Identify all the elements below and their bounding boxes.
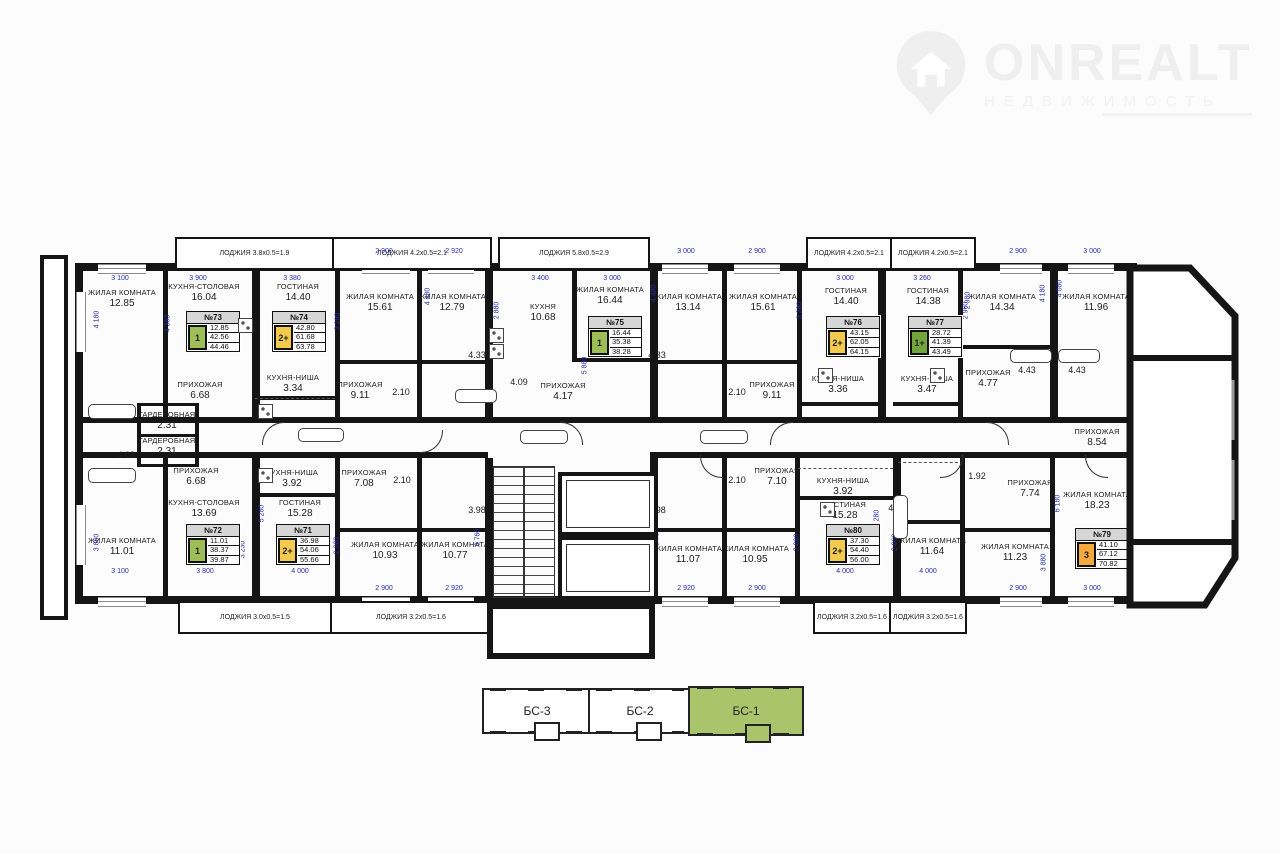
room-area: 4.33 [637,350,677,360]
door-arc [700,455,723,478]
dimension-label: 4 000 [278,568,322,575]
window-icon [1000,264,1042,274]
area-value: 55.66 [298,556,329,564]
dimension-label: 3 000 [664,248,708,255]
window-icon [98,264,146,274]
stove-icon [489,328,504,343]
stove-icon [258,468,273,483]
logo-brand-text: ONREALT [984,37,1252,89]
apartment-areas: 28.7241.3943.49 [930,329,961,356]
room-name: ЖИЛАЯ КОМНАТА [397,292,507,301]
kitchen-niche-boundary [898,462,958,463]
area-value: 63.78 [294,343,325,351]
section-notches [490,688,583,691]
section-block-БС-1[interactable]: БС-1 [688,686,804,736]
elevator-shaft-1 [558,472,658,536]
bathtub-icon [1010,349,1052,363]
loggia: ЛОДЖИЯ 5.8х0.5=2.9 [498,237,650,270]
room-area: 2.31 [112,420,222,431]
room-label: ЖИЛАЯ КОМНАТА11.23 [960,542,1070,563]
wall-segment [82,417,1130,423]
loggia-label: ЛОДЖИЯ 4.2х0.5=2.1 [898,250,968,257]
dimension-label: 2 920 [432,248,476,255]
room-name: ГАРДЕРОБНАЯ [112,436,222,445]
room-area: 4.77 [933,378,1043,389]
door-arc [770,422,793,445]
dimension-label: 3 000 [590,275,634,282]
loggia: ЛОДЖИЯ 3.2х0.5=1.6 [813,601,891,634]
room-name: ПРИХОЖАЯ [508,381,618,390]
apartment-areas: 12.8542.5644.46 [208,324,239,351]
area-value: 56.00 [848,556,879,564]
room-count-badge: 1+ [910,330,929,355]
door-arc [986,422,1009,445]
room-count-badge: 2+ [828,538,847,563]
area-value: 43.49 [930,348,961,356]
bathtub-icon [1058,349,1100,363]
room-area: 4.17 [508,391,618,402]
loggia: ЛОДЖИЯ 4.2х0.5=2.1 [890,237,976,270]
dimension-label: 2 920 [432,585,476,592]
room-area: 2.10 [381,387,421,397]
room-label: КУХНЯ-СТОЛОВАЯ13.69 [149,498,259,519]
room-area: 11.23 [960,552,1070,563]
room-count-badge: 2+ [274,325,293,350]
right-bay-outline [1125,260,1240,612]
apartment-info-box[interactable]: №762+43.1562.0564.15 [826,316,880,357]
door-arc [262,422,285,445]
wall-segment [137,403,199,406]
stove-icon [818,368,833,383]
dimension-label: 2 900 [362,248,406,255]
area-value: 39.87 [208,556,239,564]
dimension-label: 2 900 [735,248,779,255]
dimension-label: 2 880 [794,521,801,565]
room-name: ГОСТИНАЯ [243,282,353,291]
bathtub-icon [700,430,748,444]
dimension-label: 3 000 [1070,248,1114,255]
wall-segment [335,360,417,364]
stove-icon [258,404,273,419]
loggia-label: ЛОДЖИЯ 3.8х0.5=1.9 [220,250,290,257]
room-label: ПРИХОЖАЯ4.17 [508,381,618,402]
dimension-label: 3 000 [823,275,867,282]
room-area: 4.43 [1007,365,1047,375]
window-icon [662,264,708,274]
door-arc [560,422,583,445]
room-area: 6.68 [141,476,251,487]
loggia: ЛОДЖИЯ 3.8х0.5=1.9 [175,237,334,270]
window-icon [734,597,780,607]
dimension-label: 3 100 [98,568,142,575]
elevator-shaft-2 [558,536,658,600]
window-icon [1068,597,1114,607]
apartment-areas: 16.4435.3838.28 [610,329,641,356]
apartment-info-box[interactable]: №72111.0138.3739.87 [186,524,240,565]
wall-segment [485,458,493,596]
room-area: 4.68 [106,450,146,460]
apartment-info-box[interactable]: №75116.4435.3838.28 [588,316,642,357]
wall-segment [722,360,797,364]
dimension-label: 3 400 [518,275,562,282]
bathtub-icon [88,468,136,483]
room-name: КУХНЯ-СТОЛОВАЯ [149,498,259,507]
dimension-label: 3 280 [797,289,804,333]
section-notches [697,686,796,689]
section-entrance-tab [745,724,771,743]
dimension-label: 4 000 [906,568,950,575]
room-label: ЖИЛАЯ КОМНАТА11.01 [67,536,177,557]
logo-subtitle-text: НЕДВИЖИМОСТЬ [984,93,1252,110]
door-arc [420,430,443,453]
dimension-label: 2 880 [494,289,501,333]
dimension-label: 3 760 [475,516,482,560]
loggia-label: ЛОДЖИЯ 4.2х0.5=2.1 [814,250,884,257]
dimension-label: 2 880 [334,524,341,568]
area-value: 44.46 [208,343,239,351]
kitchen-niche-boundary [255,398,335,399]
dimension-label: 5 280 [259,492,266,536]
section-entrance-tab [636,722,662,741]
dimension-label: 4 180 [1040,272,1047,316]
loggia: ЛОДЖИЯ 4.2х0.5=2.1 [806,237,892,270]
stove-icon [820,502,835,517]
dimension-label: 2 900 [996,585,1040,592]
dimension-label: 2 900 [996,248,1040,255]
apartment-areas: 36.9854.0655.66 [298,537,329,564]
dimension-label: 3 900 [176,275,220,282]
wall-segment [960,528,1050,532]
dimension-label: 6 180 [1055,482,1062,526]
loggia-label: ЛОДЖИЯ 3.0х0.5=1.5 [220,614,290,621]
dimension-label: 3 860 [94,521,101,565]
room-area: 11.01 [67,546,177,557]
room-label: ПРИХОЖАЯ6.68 [141,466,251,487]
room-area: 13.69 [149,508,259,519]
section-block-БС-2[interactable]: БС-2 [588,688,692,734]
room-name: ЖИЛАЯ КОМНАТА [67,536,177,545]
window-icon [1068,264,1114,274]
section-block-БС-3[interactable]: БС-3 [482,688,592,734]
room-name: ПРИХОЖАЯ [141,466,251,475]
dimension-label: 3 100 [98,275,142,282]
room-area: 4.43 [1057,365,1097,375]
dimension-label: 3 280 [335,300,342,344]
room-count-badge: 1 [188,325,207,350]
bathtub-icon [455,389,497,403]
section-notches [596,688,684,691]
apartment-info-box[interactable]: №802+37.3054.4056.00 [826,524,880,565]
dimension-label: 4 000 [823,568,867,575]
dimension-label: 3 880 [1041,541,1048,585]
window-icon [734,264,780,274]
room-area: 2.10 [382,475,422,485]
wall-segment [417,360,485,364]
loggia: ЛОДЖИЯ 3.0х0.5=1.5 [178,601,332,634]
section-entrance-tab [534,722,560,741]
dimension-label: 4 380 [165,302,172,346]
window-icon [662,597,708,607]
room-count-badge: 1 [188,538,207,563]
door-arc [1085,455,1108,478]
section-label: БС-1 [732,704,759,718]
area-value: 38.28 [610,348,641,356]
room-area: 10.68 [488,312,598,323]
stairwell [493,466,555,598]
loggia-label: ЛОДЖИЯ 3.2х0.5=1.6 [817,614,887,621]
apartment-areas: 41.1067.1270.82 [1097,541,1128,568]
wall-segment [650,360,722,364]
apartment-areas: 43.1562.0564.15 [848,329,879,356]
room-name: ПРИХОЖАЯ [975,478,1085,487]
dimension-label: 2 900 [735,585,779,592]
window-icon [1000,597,1042,607]
onrealt-logo: ONREALT НЕДВИЖИМОСТЬ [892,28,1252,118]
dimension-label: 4 080 [1057,267,1064,311]
loggia: ЛОДЖИЯ 3.2х0.5=1.6 [330,601,492,634]
dimension-label: 2 900 [362,585,406,592]
adjacent-section-strip [40,255,68,620]
room-count-badge: 2+ [828,330,847,355]
apartment-areas: 42.8061.6863.78 [294,324,325,351]
bathtub-icon [298,428,344,442]
area-value: 70.82 [1097,560,1128,568]
room-name: ЖИЛАЯ КОМНАТА [960,542,1070,551]
apartment-info-box[interactable]: №79341.1067.1270.82 [1075,528,1129,569]
stove-icon [489,344,504,359]
loggia-label: ЛОДЖИЯ 3.2х0.5=1.6 [893,614,963,621]
wall-segment [335,528,485,532]
apartment-info-box[interactable]: №712+36.9854.0655.66 [276,524,330,565]
room-area: 3.92 [788,486,898,497]
stove-icon [238,318,253,333]
section-label: БС-3 [523,704,550,718]
room-count-badge: 1 [590,330,609,355]
wall-segment [655,528,795,532]
apartment-areas: 37.3054.4056.00 [848,537,879,564]
wall-segment [893,402,963,406]
window-icon [98,597,146,607]
room-area: 3.98 [457,505,497,515]
entrance-lobby [487,603,655,659]
dimension-label: 2 980 [965,279,972,323]
dimension-label: 3 260 [900,275,944,282]
bathtub-icon [893,495,908,539]
house-pin-icon [892,28,970,118]
apartment-info-box[interactable]: №742+42.8061.6863.78 [272,311,326,352]
dimension-label: 4 480 [425,275,432,319]
room-count-badge: 3 [1077,542,1096,567]
kitchen-niche-boundary [798,468,893,469]
loggia: ЛОДЖИЯ 3.2х0.5=1.6 [889,601,967,634]
wall-segment [800,402,878,406]
dimension-label: 3 000 [1070,585,1114,592]
stove-icon [930,368,945,383]
section-label: БС-2 [626,704,653,718]
dimension-label: 3 800 [183,568,227,575]
dimension-label: 4 180 [94,298,101,342]
bathtub-icon [88,404,136,419]
dimension-label: 2 920 [664,585,708,592]
apartment-areas: 11.0138.3739.87 [208,537,239,564]
room-count-badge: 2+ [278,538,297,563]
logo-underline [1102,113,1252,116]
dimension-label: 4 480 [651,272,658,316]
room-label: КУХНЯ-НИША3.92 [788,476,898,497]
apartment-info-box[interactable]: №73112.8542.5644.46 [186,311,240,352]
room-name: КУХНЯ-НИША [788,476,898,485]
area-value: 64.15 [848,348,879,356]
apartment-info-box[interactable]: №771+28.7241.3943.49 [908,316,962,357]
loggia-label: ЛОДЖИЯ 3.2х0.5=1.6 [376,614,446,621]
dimension-label: 3 230 [240,528,247,572]
floor-plan-canvas: ONREALT НЕДВИЖИМОСТЬ ЛОДЖИЯ 3.8х0.5=1.9Л… [0,0,1280,854]
loggia-label: ЛОДЖИЯ 5.8х0.5=2.9 [539,250,609,257]
dimension-label: 3 380 [270,275,314,282]
